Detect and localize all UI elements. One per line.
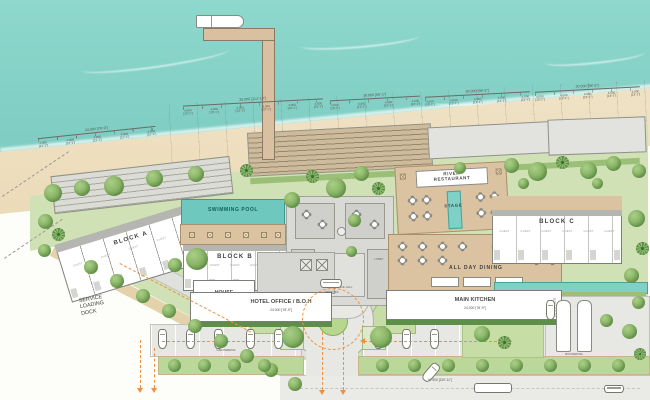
tree [258, 359, 271, 372]
tree [622, 324, 637, 339]
bus-stall [556, 300, 571, 352]
tree [188, 166, 204, 182]
palm-tree [636, 242, 649, 255]
equipment-pad [316, 259, 328, 271]
swimming-pool-label: SWIMMING POOL [182, 207, 284, 213]
fountain [337, 227, 346, 236]
route-in [322, 332, 323, 390]
road-dimension: 97.500 [319'-11"] [380, 378, 500, 382]
tree [288, 377, 302, 391]
shuttle-bus [474, 383, 512, 393]
drop-off-car [320, 279, 342, 288]
pool-deck [180, 224, 286, 245]
tree [544, 359, 557, 372]
main-kitchen: MAIN KITCHEN 24.000 [78'-9"] [386, 290, 562, 320]
car [604, 385, 624, 393]
tree [370, 326, 392, 348]
tree [624, 268, 639, 283]
tree [628, 210, 645, 227]
route-arrow [360, 338, 365, 344]
site-plan: BLOCK A GUESTGUESTGUESTGUESTGUEST SWIMMI… [0, 0, 650, 400]
car [402, 329, 411, 349]
tree [632, 296, 645, 309]
tree [84, 260, 98, 274]
tree [600, 314, 613, 327]
tree [162, 304, 176, 318]
tree [44, 184, 62, 202]
roundabout-stem [306, 346, 358, 376]
road-lane-line [300, 388, 640, 389]
tree [510, 359, 523, 372]
main-kitchen-label: MAIN KITCHEN [405, 297, 545, 303]
tree [528, 162, 547, 181]
tree [214, 334, 228, 348]
tree [606, 156, 621, 171]
tree [198, 359, 211, 372]
tree [168, 359, 181, 372]
tree [354, 166, 369, 181]
all-day-dining-label: ALL DAY DINING [419, 265, 533, 271]
palm-tree [498, 336, 511, 349]
tree [228, 359, 241, 372]
tree [38, 214, 53, 229]
tree [104, 176, 124, 196]
tree [38, 244, 51, 257]
bus-parking-label: BUS PARKING [548, 353, 600, 356]
pier [262, 28, 275, 160]
tree [348, 214, 361, 227]
route-service-out [154, 348, 155, 388]
service-dock-label: SERVICE LOADING DOCK [78, 294, 105, 317]
route-out [343, 332, 344, 390]
median-right [358, 356, 650, 375]
block-c-label: BLOCK C [492, 219, 622, 225]
tree [136, 289, 150, 303]
main-kitchen-dim: 24.000 [78'-9"] [405, 306, 545, 310]
tree [74, 180, 90, 196]
palm-tree [306, 170, 319, 183]
tree [454, 162, 466, 174]
tree [612, 359, 625, 372]
route-aisle-left [162, 341, 300, 342]
tree [476, 359, 489, 372]
hedge-row [386, 320, 562, 325]
route-roundabout [302, 288, 364, 350]
river-restaurant-label: RIVER RESTAURANT [416, 167, 489, 188]
route-arrow [151, 388, 157, 393]
car [158, 329, 167, 349]
tree [504, 158, 519, 173]
equipment-pad [300, 259, 312, 271]
palm-tree [634, 348, 646, 360]
car [430, 329, 439, 349]
swimming-pool: SWIMMING POOL [181, 199, 285, 225]
palm-tree [52, 228, 65, 241]
tree [474, 326, 490, 342]
tree [578, 359, 591, 372]
tree [592, 178, 603, 189]
guest-unit-labels: GUESTGUESTGUESTGUESTGUESTGUEST [494, 230, 620, 233]
tree [146, 170, 163, 187]
route-service-out [140, 340, 141, 388]
block-c: BLOCK C GUESTGUESTGUESTGUESTGUESTGUEST [492, 210, 622, 264]
pier-dock-arm [203, 28, 275, 41]
palm-tree [372, 182, 385, 195]
tree [188, 319, 202, 333]
buffet-counter [463, 277, 491, 287]
tree [168, 258, 182, 272]
tree [408, 359, 421, 372]
route-arrow [319, 390, 325, 395]
tree [326, 178, 346, 198]
tree [186, 248, 208, 270]
buffet-counter [431, 277, 459, 287]
route-arrow [137, 388, 143, 393]
bus-stall [577, 300, 592, 352]
tree [518, 178, 529, 189]
stage-water-feature [447, 191, 463, 230]
tree [284, 192, 300, 208]
tree [282, 326, 304, 348]
route-arrow [340, 390, 346, 395]
tree [442, 359, 455, 372]
tree [580, 162, 597, 179]
tree [110, 274, 124, 288]
car [546, 300, 555, 320]
boat [196, 15, 244, 28]
beach-walkway [547, 116, 646, 155]
tree [376, 359, 389, 372]
palm-tree [240, 164, 253, 177]
tree [346, 246, 357, 257]
palm-tree [556, 156, 569, 169]
tree [240, 349, 254, 363]
tree [632, 164, 646, 178]
